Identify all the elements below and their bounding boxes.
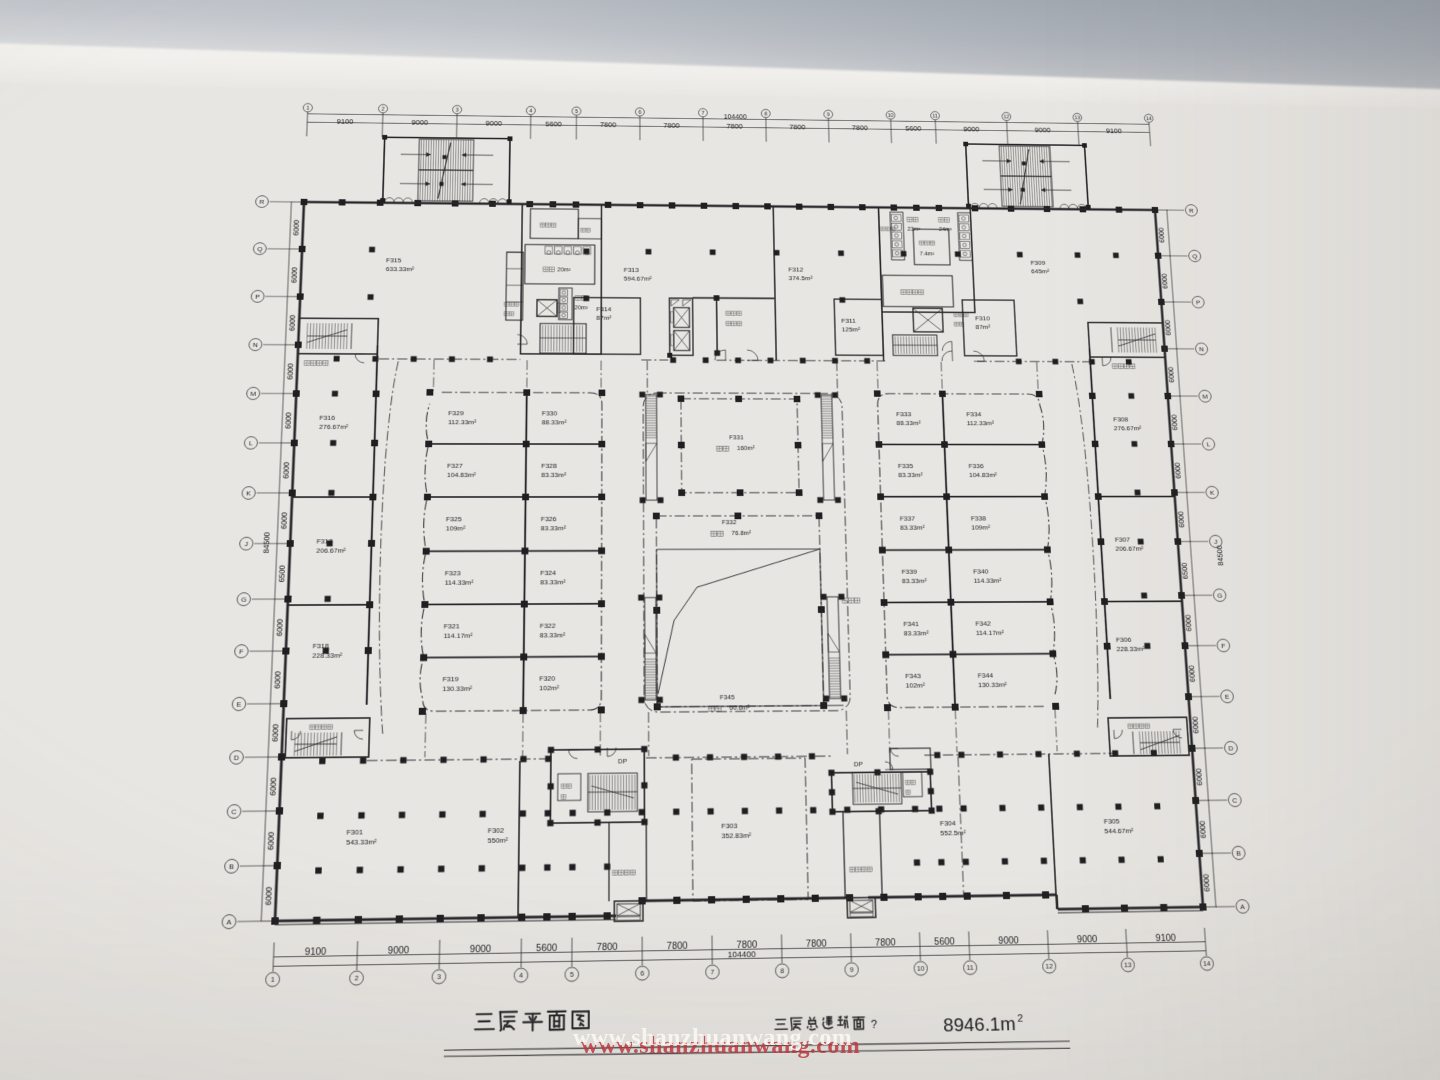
- svg-text:F333: F333: [896, 412, 912, 419]
- svg-text:4: 4: [519, 973, 524, 980]
- svg-text:10: 10: [888, 113, 894, 119]
- svg-text:5600: 5600: [905, 125, 921, 133]
- svg-text:114.33m²: 114.33m²: [445, 579, 474, 587]
- svg-text:112.33m²: 112.33m²: [967, 421, 995, 428]
- svg-text:552.5m²: 552.5m²: [940, 830, 966, 838]
- svg-text:K: K: [246, 490, 252, 497]
- svg-text:F310: F310: [975, 315, 991, 322]
- svg-text:9000: 9000: [998, 934, 1019, 946]
- svg-text:83.33m²: 83.33m²: [904, 630, 929, 638]
- svg-text:1: 1: [271, 978, 276, 985]
- svg-text:Q: Q: [257, 246, 263, 253]
- svg-text:F325: F325: [446, 516, 462, 523]
- svg-text:F326: F326: [541, 516, 557, 523]
- svg-text:20m²: 20m²: [575, 305, 588, 311]
- svg-text:F304: F304: [940, 820, 957, 828]
- svg-text:9100: 9100: [1155, 932, 1176, 944]
- svg-text:R: R: [1189, 208, 1194, 215]
- svg-text:9000: 9000: [1035, 126, 1051, 134]
- svg-text:F320: F320: [539, 675, 556, 683]
- svg-text:130.33m²: 130.33m²: [442, 686, 472, 694]
- svg-text:60.6m²: 60.6m²: [729, 705, 749, 712]
- svg-text:6000: 6000: [273, 671, 283, 689]
- svg-text:352.83m²: 352.83m²: [721, 832, 751, 840]
- svg-text:7.4m²: 7.4m²: [920, 252, 935, 258]
- svg-text:6000: 6000: [282, 462, 291, 479]
- svg-text:P: P: [1196, 300, 1201, 307]
- svg-text:5600: 5600: [536, 942, 558, 954]
- svg-text:F337: F337: [900, 516, 916, 523]
- svg-text:N: N: [253, 342, 259, 349]
- svg-text:4: 4: [529, 109, 532, 115]
- svg-text:6000: 6000: [280, 512, 289, 529]
- svg-text:F338: F338: [971, 515, 987, 522]
- svg-text:88.33m²: 88.33m²: [896, 420, 921, 427]
- svg-text:23m²: 23m²: [907, 227, 920, 233]
- svg-text:6500: 6500: [1181, 563, 1190, 580]
- svg-text:N: N: [1199, 346, 1205, 353]
- svg-text:6000: 6000: [1167, 367, 1176, 383]
- svg-text:F335: F335: [898, 463, 914, 470]
- svg-text:9100: 9100: [1106, 127, 1122, 135]
- svg-text:550m²: 550m²: [488, 837, 508, 845]
- svg-text:5: 5: [570, 972, 575, 979]
- svg-text:13: 13: [1074, 116, 1080, 122]
- svg-text:6000: 6000: [271, 724, 281, 742]
- svg-text:L: L: [1207, 441, 1212, 448]
- svg-text:7800: 7800: [726, 122, 742, 130]
- svg-text:1: 1: [306, 106, 309, 112]
- svg-text:8946.1m: 8946.1m: [943, 1013, 1016, 1037]
- svg-text:76.8m²: 76.8m²: [731, 531, 751, 537]
- svg-text:6000: 6000: [290, 267, 299, 283]
- svg-text:6: 6: [640, 971, 645, 978]
- svg-text:F341: F341: [903, 621, 919, 629]
- svg-text:84500: 84500: [262, 532, 272, 553]
- svg-text:228.33m²: 228.33m²: [1116, 646, 1145, 654]
- svg-text:7: 7: [710, 970, 715, 977]
- svg-text:9000: 9000: [388, 944, 410, 956]
- svg-text:160m²: 160m²: [737, 446, 755, 452]
- svg-text:F302: F302: [488, 827, 505, 835]
- svg-text:9100: 9100: [305, 945, 327, 957]
- svg-text:F303: F303: [721, 822, 738, 830]
- svg-text:F330: F330: [542, 411, 558, 418]
- svg-text:F322: F322: [540, 622, 556, 630]
- svg-text:A: A: [1240, 903, 1246, 911]
- svg-text:14: 14: [1203, 962, 1211, 969]
- svg-text:M: M: [1202, 394, 1208, 401]
- svg-text:7800: 7800: [789, 123, 805, 131]
- svg-text:F321: F321: [444, 623, 461, 631]
- svg-text:87m²: 87m²: [596, 315, 611, 322]
- svg-text:14: 14: [1146, 116, 1152, 122]
- svg-text:D: D: [1228, 745, 1234, 753]
- svg-text:7800: 7800: [667, 940, 688, 952]
- svg-text:544.67m²: 544.67m²: [1104, 827, 1133, 835]
- svg-text:6000: 6000: [1191, 716, 1201, 733]
- svg-text:F308: F308: [1113, 416, 1129, 423]
- svg-text:83.33m²: 83.33m²: [541, 525, 566, 532]
- svg-text:6000: 6000: [1202, 874, 1212, 892]
- svg-text:Q: Q: [1192, 253, 1197, 260]
- svg-text:125m²: 125m²: [841, 326, 860, 333]
- svg-text:DP: DP: [618, 759, 627, 766]
- svg-text:F301: F301: [346, 829, 363, 837]
- svg-text:F313: F313: [624, 267, 640, 274]
- svg-text:83.33m²: 83.33m²: [900, 525, 925, 532]
- svg-text:9000: 9000: [963, 125, 979, 133]
- svg-text:5: 5: [575, 109, 578, 115]
- svg-text:228.33m²: 228.33m²: [312, 652, 342, 660]
- svg-text:543.33m²: 543.33m²: [346, 839, 377, 847]
- svg-text:104.83m²: 104.83m²: [969, 472, 997, 479]
- svg-text:F340: F340: [973, 568, 989, 575]
- svg-text:F343: F343: [905, 673, 921, 681]
- svg-text:88.33m²: 88.33m²: [542, 420, 567, 427]
- svg-text:F314: F314: [596, 306, 612, 313]
- svg-text:6000: 6000: [264, 887, 274, 906]
- svg-text:8: 8: [764, 112, 767, 118]
- svg-text:6000: 6000: [1184, 615, 1194, 632]
- svg-text:13: 13: [1124, 963, 1132, 970]
- svg-text:B: B: [229, 863, 234, 871]
- svg-text:7800: 7800: [663, 122, 679, 130]
- svg-text:C: C: [231, 808, 237, 816]
- svg-text:6: 6: [638, 110, 641, 116]
- svg-text:594.67m²: 594.67m²: [624, 276, 652, 283]
- svg-text:7800: 7800: [875, 936, 896, 948]
- svg-text:102m²: 102m²: [539, 685, 559, 693]
- svg-text:3: 3: [456, 108, 459, 114]
- svg-text:F307: F307: [1115, 536, 1131, 543]
- svg-text:8: 8: [780, 969, 785, 976]
- svg-text:F345: F345: [720, 695, 736, 702]
- svg-text:20m²: 20m²: [557, 267, 570, 273]
- svg-text:F317: F317: [316, 538, 333, 545]
- svg-text:645m²: 645m²: [1031, 268, 1050, 275]
- svg-text:9000: 9000: [486, 119, 503, 127]
- svg-text:DP: DP: [854, 762, 863, 769]
- svg-text:6000: 6000: [1188, 665, 1198, 682]
- svg-text:7800: 7800: [852, 124, 868, 132]
- svg-text:2: 2: [381, 107, 384, 113]
- svg-text:F334: F334: [966, 412, 982, 419]
- svg-text:?: ?: [871, 1019, 878, 1032]
- svg-text:F309: F309: [1030, 260, 1045, 267]
- svg-text:109m²: 109m²: [971, 525, 990, 532]
- svg-text:114.17m²: 114.17m²: [976, 629, 1004, 637]
- svg-text:F306: F306: [1116, 637, 1132, 645]
- svg-text:12: 12: [1003, 115, 1009, 121]
- svg-text:J: J: [1214, 539, 1218, 546]
- svg-text:276.67m²: 276.67m²: [319, 424, 348, 431]
- svg-text:83.33m²: 83.33m²: [541, 472, 566, 479]
- svg-text:83.33m²: 83.33m²: [540, 579, 565, 587]
- svg-text:P: P: [255, 294, 260, 301]
- svg-text:104400: 104400: [727, 949, 755, 960]
- svg-text:104400: 104400: [724, 114, 747, 121]
- svg-text:5600: 5600: [934, 935, 955, 947]
- svg-text:2: 2: [354, 976, 359, 983]
- svg-text:104.83m²: 104.83m²: [447, 472, 476, 479]
- svg-text:G: G: [241, 596, 247, 604]
- svg-text:7800: 7800: [600, 121, 616, 129]
- svg-text:F: F: [239, 648, 244, 656]
- svg-text:6500: 6500: [278, 565, 288, 582]
- svg-text:87m²: 87m²: [975, 324, 990, 331]
- svg-text:R: R: [259, 199, 265, 206]
- svg-text:6000: 6000: [275, 619, 285, 636]
- svg-text:F344: F344: [978, 672, 994, 680]
- svg-text:3: 3: [437, 975, 442, 982]
- svg-text:12: 12: [1045, 964, 1053, 971]
- svg-text:9: 9: [827, 112, 830, 118]
- svg-text:6000: 6000: [288, 315, 297, 331]
- svg-text:206.67m²: 206.67m²: [316, 547, 346, 555]
- svg-text:102m²: 102m²: [905, 682, 925, 690]
- svg-text:F339: F339: [902, 568, 918, 575]
- svg-text:9: 9: [850, 968, 855, 975]
- svg-text:M: M: [250, 391, 256, 398]
- svg-text:114.17m²: 114.17m²: [443, 632, 472, 640]
- svg-text:2: 2: [1017, 1012, 1023, 1024]
- svg-text:6000: 6000: [266, 832, 276, 850]
- svg-text:276.67m²: 276.67m²: [1114, 425, 1142, 432]
- svg-text:F318: F318: [313, 643, 330, 651]
- svg-text:F305: F305: [1104, 818, 1121, 826]
- svg-text:F324: F324: [540, 570, 556, 577]
- svg-text:114.33m²: 114.33m²: [973, 577, 1001, 584]
- svg-text:K: K: [1210, 490, 1216, 497]
- svg-text:6000: 6000: [286, 363, 295, 379]
- svg-text:F332: F332: [722, 520, 737, 526]
- svg-text:7800: 7800: [806, 937, 827, 949]
- svg-text:G: G: [1217, 592, 1223, 599]
- svg-text:374.5m²: 374.5m²: [789, 275, 813, 282]
- svg-text:11: 11: [967, 966, 975, 973]
- svg-text:F336: F336: [968, 463, 984, 470]
- svg-text:6000: 6000: [1195, 768, 1205, 785]
- svg-text:5600: 5600: [545, 120, 561, 128]
- svg-text:6000: 6000: [1157, 227, 1166, 242]
- svg-text:9100: 9100: [337, 118, 354, 126]
- svg-text:6000: 6000: [269, 778, 279, 796]
- svg-text:9000: 9000: [1077, 933, 1098, 945]
- svg-text:10: 10: [917, 967, 925, 974]
- svg-text:83.33m²: 83.33m²: [902, 578, 927, 585]
- svg-text:6000: 6000: [284, 412, 293, 428]
- svg-text:F316: F316: [319, 415, 335, 422]
- svg-text:11: 11: [932, 114, 938, 120]
- svg-text:6000: 6000: [1174, 462, 1183, 478]
- svg-text:7: 7: [701, 111, 704, 117]
- svg-text:C: C: [1232, 797, 1238, 805]
- svg-text:F328: F328: [541, 463, 557, 470]
- svg-text:E: E: [236, 701, 241, 709]
- svg-text:130.33m²: 130.33m²: [978, 682, 1007, 690]
- svg-text:83.33m²: 83.33m²: [898, 472, 923, 479]
- svg-text:83.33m²: 83.33m²: [540, 632, 566, 640]
- svg-text:6000: 6000: [1177, 511, 1186, 527]
- svg-text:F342: F342: [975, 620, 991, 628]
- svg-text:J: J: [244, 541, 248, 548]
- svg-text:206.67m²: 206.67m²: [1115, 546, 1143, 553]
- svg-text:F311: F311: [841, 318, 856, 325]
- svg-text:F315: F315: [386, 257, 402, 264]
- svg-text:6000: 6000: [1170, 414, 1179, 430]
- svg-text:A: A: [226, 919, 232, 927]
- svg-text:6000: 6000: [1198, 821, 1208, 839]
- svg-text:6000: 6000: [1161, 273, 1170, 288]
- svg-text:7800: 7800: [597, 941, 618, 953]
- svg-text:F312: F312: [788, 267, 804, 274]
- svg-text:F327: F327: [447, 463, 463, 470]
- svg-text:B: B: [1236, 850, 1241, 858]
- svg-text:24m²: 24m²: [939, 227, 952, 233]
- svg-text:D: D: [234, 754, 240, 762]
- svg-text:E: E: [1225, 694, 1230, 702]
- svg-text:F323: F323: [445, 570, 461, 578]
- svg-text:F331: F331: [729, 435, 744, 441]
- svg-text:F319: F319: [442, 676, 459, 684]
- svg-text:633.33m²: 633.33m²: [386, 266, 415, 273]
- svg-text:F329: F329: [448, 410, 464, 417]
- svg-text:84500: 84500: [1216, 545, 1226, 566]
- svg-text:6000: 6000: [292, 220, 301, 236]
- svg-text:F: F: [1221, 643, 1226, 650]
- svg-text:109m²: 109m²: [446, 525, 466, 532]
- svg-text:L: L: [249, 440, 254, 447]
- svg-text:6000: 6000: [1164, 320, 1173, 336]
- svg-text:112.33m²: 112.33m²: [448, 419, 476, 426]
- svg-text:9000: 9000: [470, 943, 492, 955]
- svg-text:9000: 9000: [411, 119, 428, 127]
